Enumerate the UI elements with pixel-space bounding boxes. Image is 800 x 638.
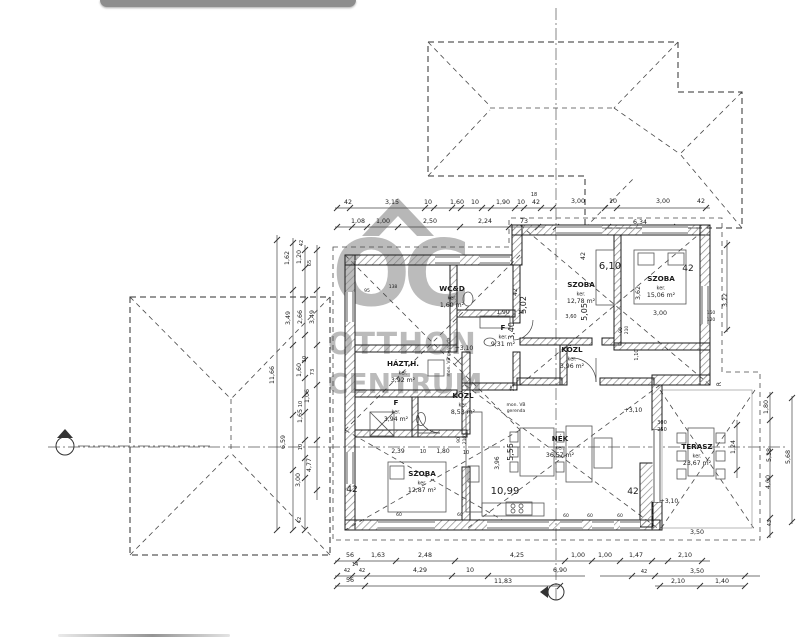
dim-label: 42 xyxy=(297,517,303,523)
room-label: SZOBAker.12,87 m² xyxy=(408,469,437,494)
dim-label: 42 xyxy=(344,568,350,574)
dim-label: 73 xyxy=(310,369,316,375)
room-label: WC&Dker.1,60 m² xyxy=(439,284,464,309)
dim-label: 1,65 xyxy=(297,409,304,423)
dim-label: 90 xyxy=(618,327,624,333)
svg-text:ker.: ker. xyxy=(459,403,468,409)
svg-text:F: F xyxy=(394,398,399,407)
svg-text:ker.: ker. xyxy=(448,296,457,302)
dim-label: 42 xyxy=(512,288,519,296)
dim-label: 95 xyxy=(364,288,370,294)
svg-text:WC&D: WC&D xyxy=(439,284,464,293)
dim-label: 3,60 xyxy=(565,314,576,320)
dim-label: 2,66 xyxy=(297,310,304,324)
svg-text:1,60 m²: 1,60 m² xyxy=(440,302,465,309)
svg-text:SZOBA: SZOBA xyxy=(408,469,436,478)
dim-label: +3,10 xyxy=(455,345,474,352)
dim-label: R xyxy=(716,382,723,386)
dim-label: mon. VB gerenda xyxy=(446,337,452,376)
svg-text:ker.: ker. xyxy=(418,481,427,487)
dim-label: 14 xyxy=(352,562,358,568)
dim-label: 60 xyxy=(457,512,463,518)
dim-label: 10 xyxy=(424,199,432,206)
dim-label: 1,24 xyxy=(730,440,737,454)
section-marker-left xyxy=(56,429,210,455)
dim-label: 42 xyxy=(359,568,365,574)
dim-label: 10 xyxy=(420,449,426,455)
svg-text:ker.: ker. xyxy=(657,286,666,292)
svg-text:15,06 m²: 15,06 m² xyxy=(647,292,676,299)
dim-label: gerenda xyxy=(507,408,526,414)
dim-label: 120 xyxy=(707,317,716,323)
dim-label: 10 xyxy=(463,450,469,456)
dim-label: 4,77 xyxy=(306,458,313,472)
svg-text:NÉK: NÉK xyxy=(552,434,569,443)
svg-text:8,53 m²: 8,53 m² xyxy=(451,409,476,416)
svg-text:TERASZ: TERASZ xyxy=(681,442,712,451)
dim-label: 10 xyxy=(298,401,304,407)
dim-label: 3,50 xyxy=(690,568,704,575)
svg-text:KÖZL: KÖZL xyxy=(561,345,583,354)
dim-label: 1,00 xyxy=(376,218,390,225)
dim-label: 3,96 xyxy=(494,456,501,470)
axis-lines xyxy=(48,8,788,602)
dim-label: 1,08 xyxy=(351,218,365,225)
dim-label: 60 xyxy=(563,513,569,519)
dim-label: 42 xyxy=(580,252,587,260)
dim-label: 43 xyxy=(767,520,773,526)
dim-label: 5,68 xyxy=(785,450,792,464)
dim-label: 5,38 xyxy=(766,448,773,462)
dim-label: 2,50 xyxy=(423,218,437,225)
dim-label: 65 xyxy=(307,260,313,266)
dim-label: 42 xyxy=(346,485,357,495)
dim-label: 3,00 xyxy=(656,198,670,205)
section-marker-bottom xyxy=(540,584,564,600)
dim-label: 1,40 xyxy=(715,578,729,585)
dim-label: 3,15 xyxy=(385,199,399,206)
svg-text:3,96 m²: 3,96 m² xyxy=(560,363,585,370)
dim-label: 4,29 xyxy=(413,567,427,574)
dim-label: 10 xyxy=(518,310,524,316)
dim-label: 42 xyxy=(627,487,638,497)
svg-text:ker.: ker. xyxy=(568,357,577,363)
dim-label: 6,59 xyxy=(280,435,287,449)
svg-text:KÖZL: KÖZL xyxy=(452,391,474,400)
svg-text:HÁZT.H.: HÁZT.H. xyxy=(387,359,419,368)
dim-label: 2,24 xyxy=(478,218,492,225)
room-label: Fker.3,94 m² xyxy=(384,398,409,423)
room-label: KÖZLker.8,53 m² xyxy=(451,391,476,416)
dim-label: 42 xyxy=(697,198,705,205)
dim-label: 1,90 xyxy=(496,309,510,316)
svg-text:3,94 m²: 3,94 m² xyxy=(384,416,409,423)
dim-label: +3,10 xyxy=(660,498,679,505)
dim-label: 42 xyxy=(641,569,647,575)
svg-text:ker.: ker. xyxy=(399,371,408,377)
dim-label: 5,55 xyxy=(506,443,515,461)
dim-label: 4,25 xyxy=(510,552,524,559)
dim-label: 56 xyxy=(346,552,354,559)
dim-label: 3,00 xyxy=(295,473,302,487)
svg-text:9,31 m²: 9,31 m² xyxy=(491,341,516,348)
dim-label: 2,10 xyxy=(678,552,692,559)
dim-label: 1,63 xyxy=(371,552,385,559)
dim-label: 2,39 xyxy=(391,448,405,455)
svg-text:ker.: ker. xyxy=(556,446,565,452)
dim-label: mon. VB xyxy=(506,402,525,408)
left-roof-outline xyxy=(130,297,330,555)
dim-label: 4,00 xyxy=(765,475,772,489)
dim-label: 60 xyxy=(396,512,402,518)
dim-label: 1,80 xyxy=(436,448,450,455)
dim-label: 1,62 xyxy=(284,251,291,265)
dim-label: 210 xyxy=(624,326,630,335)
svg-text:ker.: ker. xyxy=(499,335,508,341)
dim-label: 3,62 xyxy=(635,286,642,300)
bottom-bar-edge xyxy=(58,634,230,637)
dim-label: 42 xyxy=(682,264,693,274)
dim-label: 1,06 xyxy=(304,389,311,403)
svg-text:ker.: ker. xyxy=(693,454,702,460)
dim-label: 60 xyxy=(617,513,623,519)
dim-label: 60 xyxy=(587,513,593,519)
dim-label: 73 xyxy=(520,218,528,225)
dim-label: 10 xyxy=(471,199,479,206)
svg-text:ker.: ker. xyxy=(392,410,401,416)
dim-label: 210 xyxy=(462,436,468,445)
dim-label: 42 xyxy=(344,199,352,206)
svg-text:23,67 m²: 23,67 m² xyxy=(683,460,712,467)
dim-label: 42 xyxy=(532,199,540,206)
dim-label: 6,10 xyxy=(599,261,621,272)
dim-label: 2,10 xyxy=(671,578,685,585)
dim-label: 1,60 xyxy=(450,199,464,206)
dim-label: 3,00 xyxy=(571,198,585,205)
room-label: NÉKker.36,57 m² xyxy=(546,434,575,459)
dim-label: 1,90 xyxy=(496,199,510,206)
dim-label: 250 xyxy=(657,427,667,433)
dim-label: 3,40 xyxy=(507,322,516,340)
svg-text:SZOBA: SZOBA xyxy=(567,280,595,289)
dim-label: 6,90 xyxy=(553,567,567,574)
svg-text:F: F xyxy=(501,323,506,332)
dim-label: 1,00 xyxy=(571,552,585,559)
dim-label: 3,49 xyxy=(285,311,292,325)
room-label: SZOBAker.15,06 m² xyxy=(647,274,676,299)
svg-text:3,92 m²: 3,92 m² xyxy=(391,377,416,384)
dim-label: 1,47 xyxy=(629,552,643,559)
dim-label: +3,10 xyxy=(624,407,643,414)
screenshot-root: OC OTTHON CENTRUM xyxy=(0,0,800,638)
dim-label: 42 xyxy=(299,240,305,246)
dim-label: 3,49 xyxy=(309,310,316,324)
dim-label: 11,83 xyxy=(494,578,512,585)
room-label: HÁZT.H.ker.3,92 m² xyxy=(387,359,419,384)
dim-label: 56 xyxy=(346,577,354,584)
svg-text:SZOBA: SZOBA xyxy=(647,274,675,283)
dim-label: 2,48 xyxy=(418,552,432,559)
dim-label: 3,00 xyxy=(653,310,667,317)
dim-label: 3,22 xyxy=(722,293,729,307)
dim-label: 300 xyxy=(657,420,667,426)
dim-label: 3,50 xyxy=(690,529,704,536)
dim-label: 10 xyxy=(466,567,474,574)
dim-label: 1,80 xyxy=(763,400,770,414)
dim-label: 138 xyxy=(389,284,398,290)
svg-text:36,57 m²: 36,57 m² xyxy=(546,452,575,459)
dim-label: 1,20 xyxy=(296,250,303,264)
dim-label: 18 xyxy=(531,192,537,198)
dim-label: 6,34 xyxy=(633,219,647,226)
dim-label: 1,00 xyxy=(598,552,612,559)
svg-text:12,78 m²: 12,78 m² xyxy=(567,298,596,305)
svg-text:12,87 m²: 12,87 m² xyxy=(408,487,437,494)
svg-text:ker.: ker. xyxy=(577,292,586,298)
dim-label: 1,10 xyxy=(634,349,640,360)
dim-label: 1,60 xyxy=(296,363,303,377)
room-label: SZOBAker.12,78 m² xyxy=(567,280,596,305)
dim-label: 10 xyxy=(517,199,525,206)
dim-label: 10 xyxy=(302,356,308,362)
floor-plan-drawing: 423,15101,60101,901042183,00103,00421,08… xyxy=(0,0,800,638)
dim-label: 10 xyxy=(609,198,617,205)
dim-label: 5,05 xyxy=(580,303,589,321)
dim-label: 90 xyxy=(456,437,462,443)
dim-label: 10,99 xyxy=(491,486,520,497)
dim-label: 25 xyxy=(510,385,516,391)
dim-label: 10 xyxy=(298,444,304,450)
dim-label: 11,66 xyxy=(269,366,276,384)
dim-label: 150 xyxy=(707,310,716,316)
